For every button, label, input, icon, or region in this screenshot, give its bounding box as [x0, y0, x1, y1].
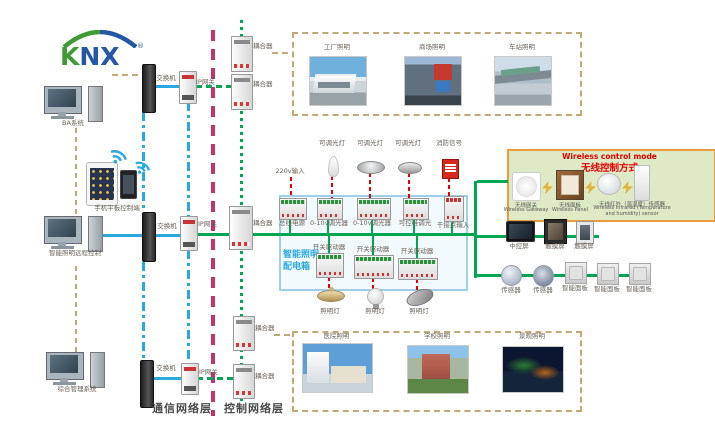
switch-label: 交换机	[153, 223, 181, 231]
ethernet-backbone-line	[142, 262, 145, 362]
switch-actuator	[316, 253, 344, 278]
actuator-label: 开关驱动器	[400, 248, 434, 256]
bus-power-label: 总线电源	[272, 220, 312, 228]
line-coupler	[231, 36, 253, 72]
smart-panel-device	[565, 262, 587, 284]
lamp-label: 照明灯	[364, 308, 386, 316]
ceiling-lamp	[398, 162, 422, 174]
load-line	[448, 178, 450, 198]
tablet-device	[86, 162, 118, 206]
candle-lamp	[328, 156, 339, 177]
wireless-gateway-label-en: Wireless Gateway	[501, 208, 551, 214]
mobile-control-label: 手机平板控制端	[82, 205, 152, 213]
actuator-label: 开关驱动器	[356, 246, 390, 254]
touch-screen-label: 触摸屏	[540, 243, 570, 251]
wireless-panel-device	[556, 170, 584, 200]
power-input-line	[290, 177, 292, 198]
fire-alarm	[442, 159, 459, 179]
coupler-label: 耦合器	[253, 43, 277, 51]
dimmer-label: 0-10v调光器	[352, 220, 392, 228]
scene-label-factory: 工厂照明	[309, 44, 365, 52]
coupler-label: 耦合器	[255, 373, 279, 381]
smart-panel-label: 智能面板	[559, 285, 591, 293]
remote-control-label: 智能照明远程控制	[20, 250, 130, 258]
scene-photo-mall	[404, 56, 462, 106]
wireless-panel-label-en: Wireless Panel	[548, 208, 592, 214]
management-bus-line	[75, 128, 77, 216]
knx-branch-line	[477, 180, 508, 183]
coupler-to-frame-line	[274, 334, 292, 336]
switch-actuator	[398, 258, 438, 280]
scene-label-hospital: 医院照明	[302, 333, 371, 341]
line-coupler	[233, 316, 255, 351]
central-screen-label: 中控屏	[503, 243, 535, 251]
smart-panel-device	[597, 263, 619, 285]
ethernet-switch	[142, 212, 156, 262]
sensor-label: 传感器	[530, 287, 556, 295]
ethernet-backbone-line	[187, 102, 190, 216]
scene-photo-hospital	[302, 343, 373, 393]
management-bus-line	[75, 266, 77, 352]
actuator-label: 开关驱动器	[312, 244, 346, 252]
scene-photo-landscape	[502, 346, 564, 393]
diagram-canvas: KNX ® BA系统 手机平板控制端 智能照明远程控制 综合管理系统 交换机 I…	[0, 0, 715, 443]
ip-gateway	[179, 71, 197, 104]
coupler-label: 耦合器	[255, 325, 279, 333]
ip-gateway	[180, 216, 198, 251]
line-coupler	[231, 74, 253, 110]
wireless-sensor-label-en: Wireless infrared (Temperature and humid…	[592, 206, 672, 217]
scene-label-landscape: 景观照明	[502, 333, 562, 341]
control-layer-label: 控制网络层	[224, 400, 284, 416]
load-label-dimmable: 可调光灯	[318, 140, 346, 148]
bulb-lamp	[367, 288, 384, 305]
smart-panel-device	[629, 263, 651, 285]
central-control-screen	[506, 221, 535, 242]
switch-label: 交换机	[152, 75, 180, 83]
smart-panel-label: 智能面板	[623, 286, 655, 294]
scene-photo-station	[494, 56, 552, 106]
wireless-gateway-device	[512, 172, 541, 201]
coupler-label: 耦合器	[253, 81, 277, 89]
dry-contact-input	[444, 196, 464, 222]
load-line	[331, 176, 333, 198]
power-input-label: 220v输入	[272, 168, 308, 176]
dimmer-label: 0-10v调光器	[308, 220, 350, 228]
scene-label-mall: 商场照明	[404, 44, 460, 52]
scr-dimmer	[403, 198, 429, 220]
ip-gateway-label: IP网关	[198, 221, 224, 229]
switch-label: 交换机	[152, 365, 180, 373]
touch-screen	[544, 219, 567, 244]
downlight-lamp	[357, 161, 385, 174]
line-coupler	[233, 364, 255, 399]
wireless-sensor-rect	[634, 165, 650, 201]
load-label-dimmable: 可调光灯	[356, 140, 384, 148]
ip-gateway-label: IP网关	[196, 79, 222, 87]
switch-actuator	[354, 255, 394, 279]
ethernet-link-line	[154, 234, 181, 237]
ethernet-link-line	[100, 234, 143, 237]
touch-screen	[576, 221, 594, 244]
wireless-sensor-round	[597, 173, 621, 195]
dry-contact-label: 干接点输入	[436, 222, 470, 230]
dimmer-0-10v	[357, 198, 391, 220]
scene-photo-school	[407, 345, 469, 394]
registered-mark: ®	[137, 42, 144, 50]
scene-label-school: 学校照明	[407, 333, 467, 341]
ip-gateway-label: IP网关	[199, 369, 225, 377]
knx-branch-line	[197, 377, 235, 380]
ip-gateway	[181, 363, 199, 395]
scr-dimmer-label: 可控硅调光	[396, 220, 434, 228]
knx-logo: KNX ®	[54, 30, 146, 80]
knx-riser-line	[474, 181, 477, 278]
phone-device	[120, 170, 137, 199]
load-line	[369, 173, 371, 198]
distribution-box-title: 智能照明 配电箱	[283, 250, 319, 273]
smart-panel-label: 智能面板	[591, 286, 623, 294]
load-line	[408, 173, 410, 198]
bus-power-supply	[279, 198, 307, 220]
knx-logo-text: KNX	[60, 44, 120, 69]
ba-system-label: BA系统	[38, 120, 108, 128]
scene-label-station: 车站照明	[494, 44, 550, 52]
coupler-to-frame-line	[272, 52, 292, 54]
dimmer-0-10v	[317, 198, 343, 220]
ceiling-fixture-lamp	[317, 290, 345, 302]
load-label-dimmable: 可调光灯	[394, 140, 422, 148]
sensor-device	[533, 265, 554, 287]
ethernet-link-line	[152, 85, 180, 88]
sensor-label: 传感器	[498, 287, 524, 295]
touch-screen-label: 触摸屏	[570, 243, 598, 251]
ethernet-switch	[142, 64, 156, 113]
ethernet-backbone-line	[187, 250, 190, 363]
load-label-fire: 消防信号	[434, 140, 464, 148]
management-system-label: 综合管理系统	[42, 386, 112, 394]
sensor-device	[501, 265, 522, 286]
ethernet-link-line	[152, 377, 182, 380]
lamp-label: 照明灯	[317, 308, 343, 316]
lamp-label: 照明灯	[407, 308, 431, 316]
scene-photo-factory	[309, 56, 367, 106]
communication-layer-label: 通信网络层	[152, 400, 212, 416]
line-coupler	[229, 206, 253, 250]
